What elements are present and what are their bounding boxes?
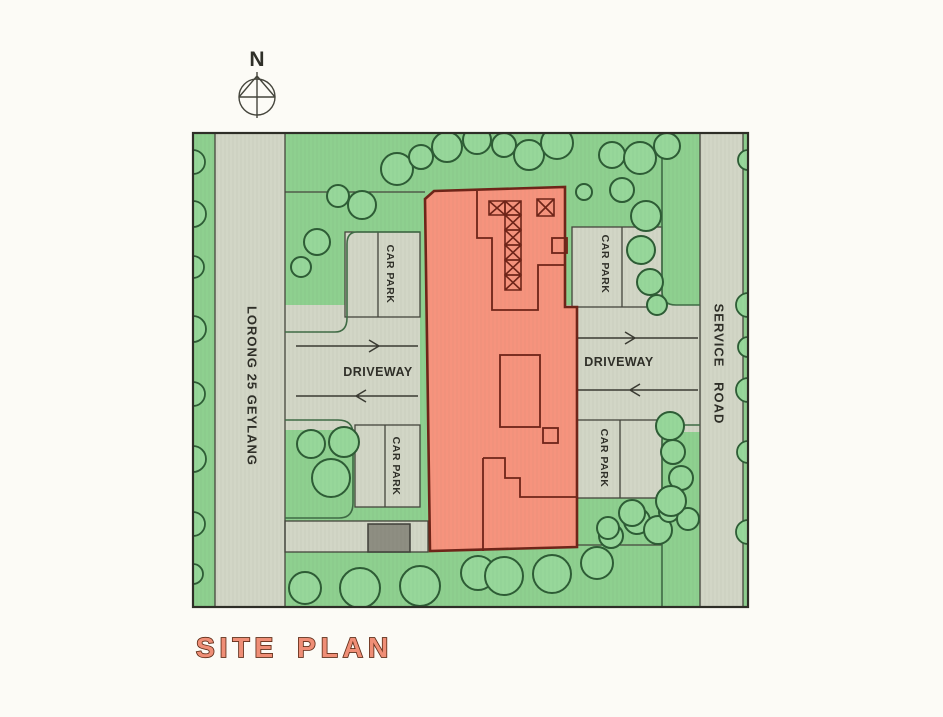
paper-texture <box>193 133 748 607</box>
site-map <box>180 126 760 608</box>
driveway-right-label: DRIVEWAY <box>584 355 654 369</box>
compass-icon: N <box>239 48 275 118</box>
driveway-left-label: DRIVEWAY <box>343 365 413 379</box>
north-label: N <box>249 48 264 71</box>
car-park-top-left-label: CAR PARK <box>384 245 396 304</box>
car-park-bottom-right-label: CAR PARK <box>598 429 610 488</box>
left-road-label: LORONG 25 GEYLANG <box>245 306 260 466</box>
site-plan-drawing: LORONG 25 GEYLANG SERVICE ROAD CAR PARK … <box>0 0 943 717</box>
service-road-label: SERVICE ROAD <box>712 304 727 425</box>
site-plan-page: LORONG 25 GEYLANG SERVICE ROAD CAR PARK … <box>0 0 943 717</box>
car-park-top-right-label: CAR PARK <box>599 235 611 294</box>
page-title: SITE PLAN <box>196 632 393 663</box>
car-park-bottom-left-label: CAR PARK <box>390 437 402 496</box>
